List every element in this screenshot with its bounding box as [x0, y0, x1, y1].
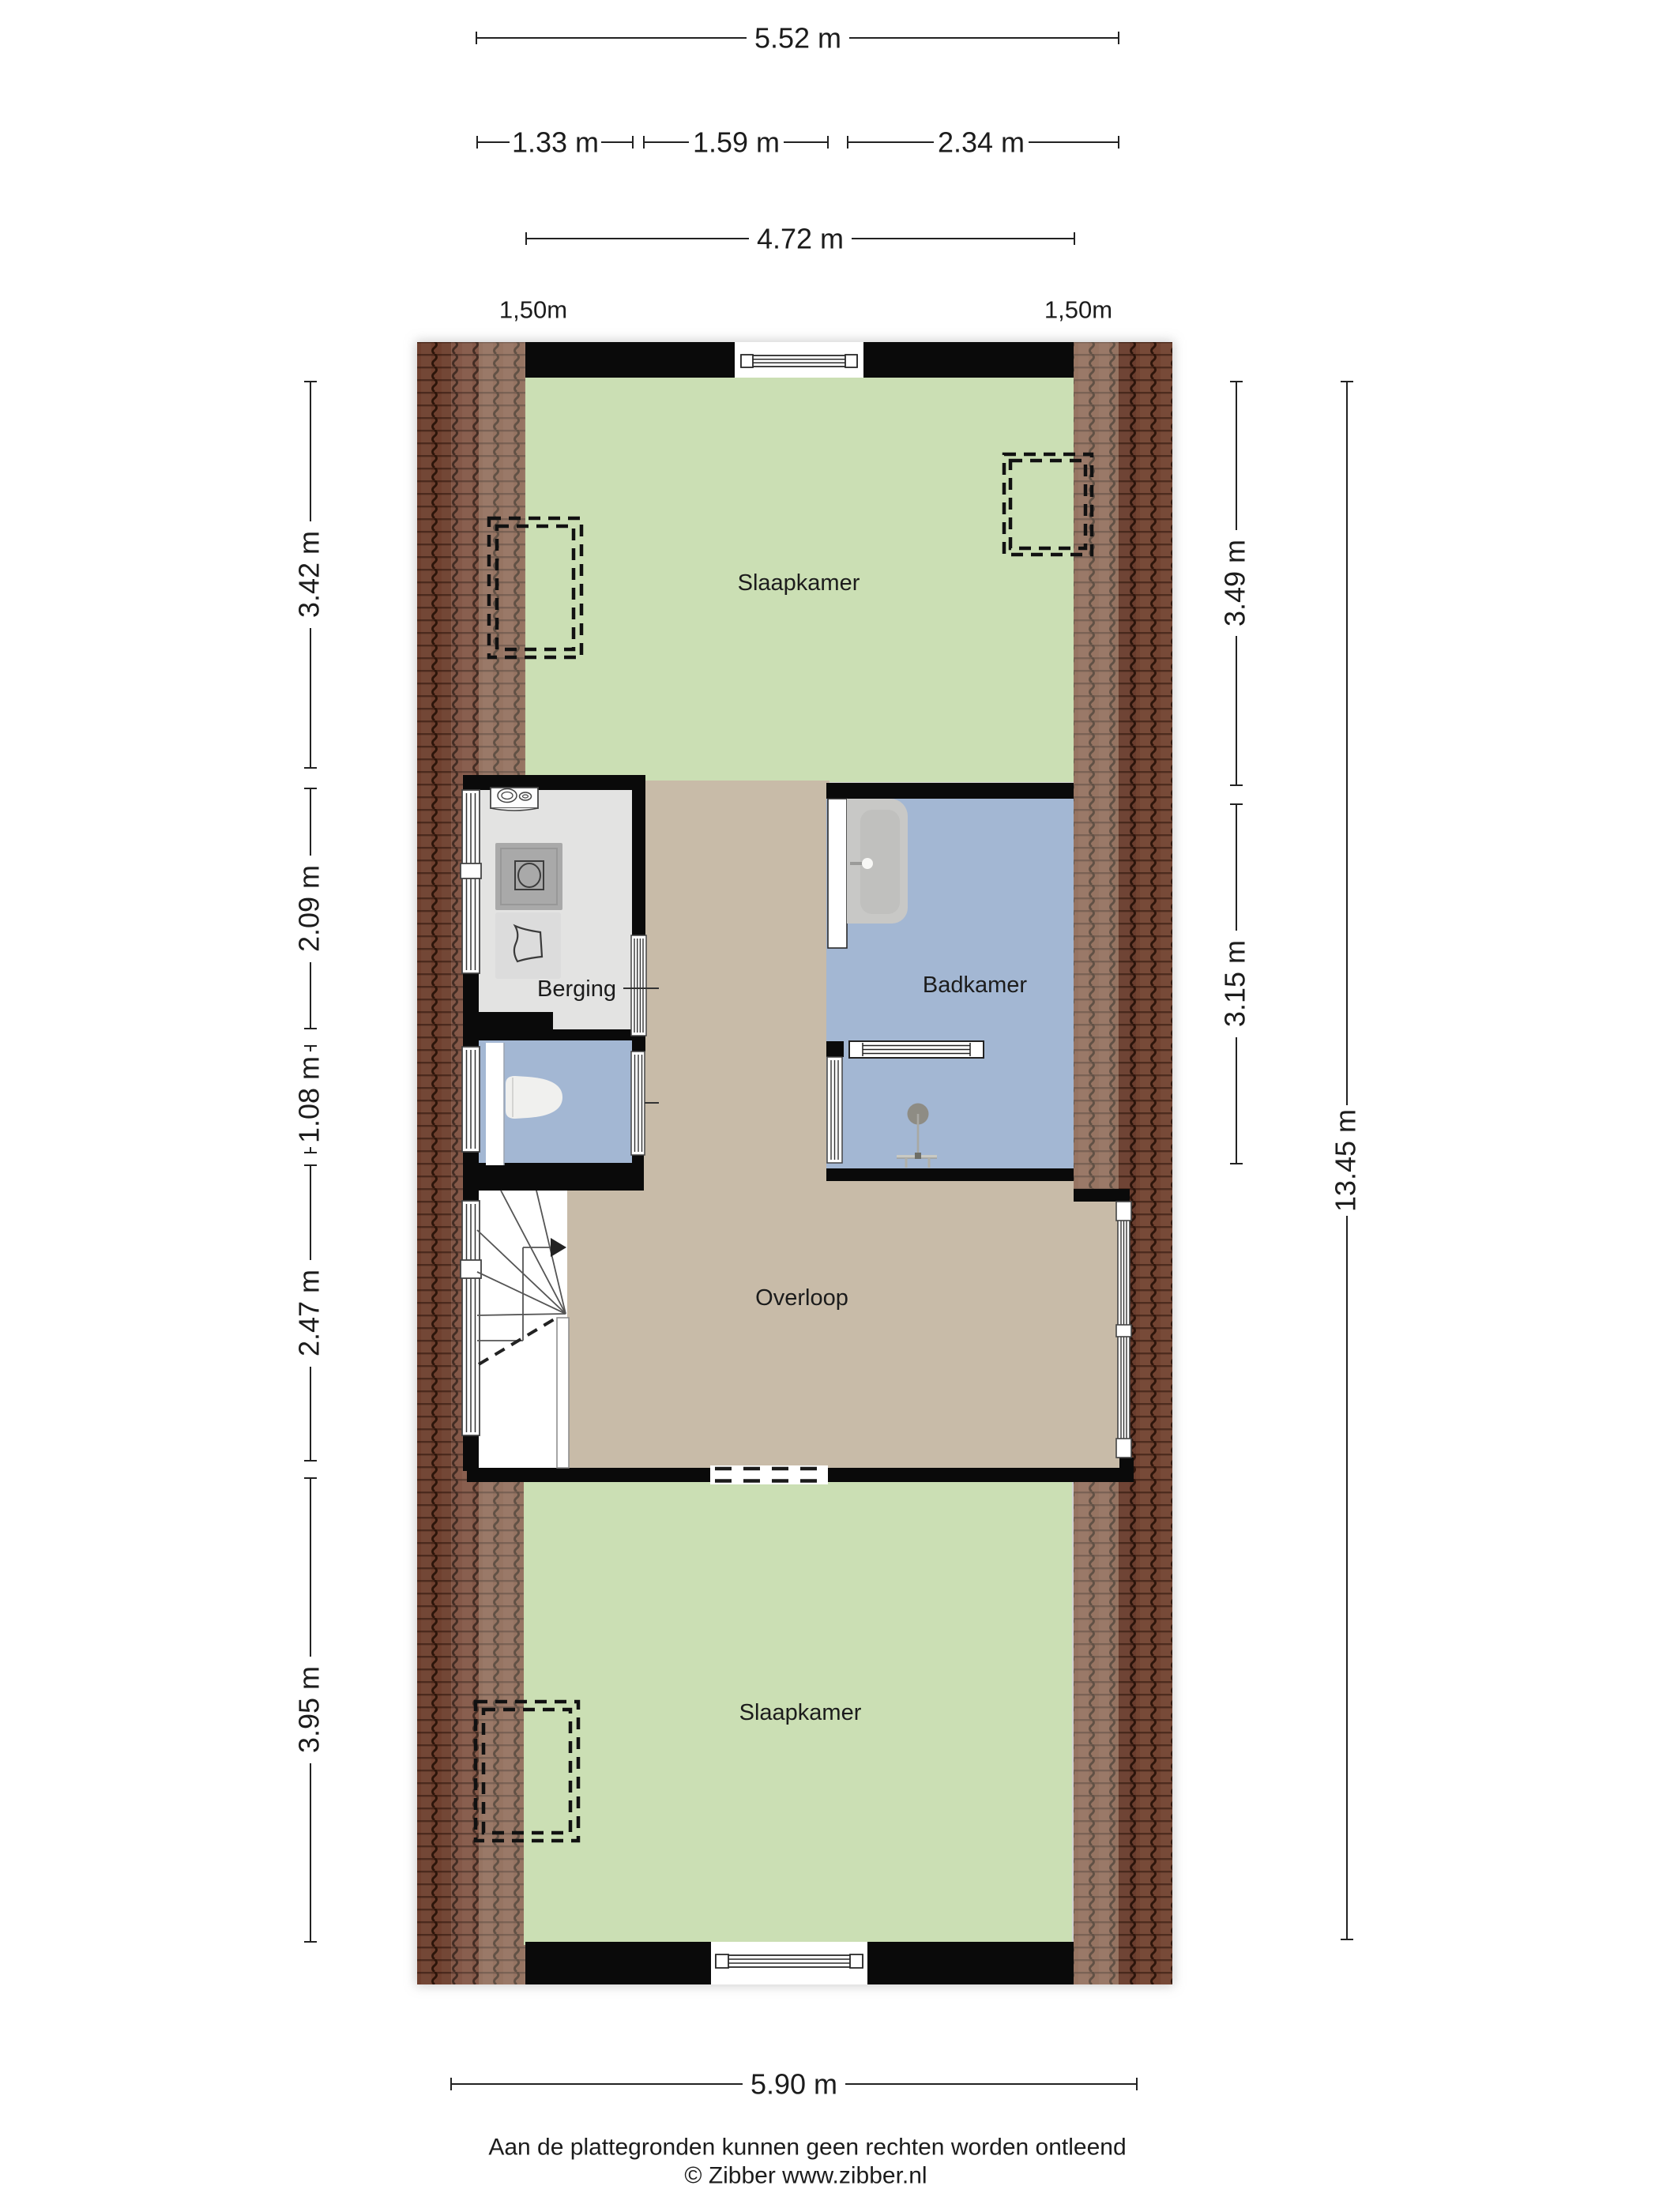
svg-text:5.90 m: 5.90 m: [750, 2068, 837, 2101]
svg-text:3.49 m: 3.49 m: [1219, 540, 1251, 626]
svg-text:Slaapkamer: Slaapkamer: [739, 1700, 862, 1725]
svg-text:1,50m: 1,50m: [1044, 296, 1112, 324]
svg-text:Slaapkamer: Slaapkamer: [738, 570, 860, 596]
svg-text:1.08 m: 1.08 m: [293, 1056, 325, 1143]
svg-text:2.09 m: 2.09 m: [293, 865, 325, 952]
svg-text:4.72 m: 4.72 m: [757, 223, 844, 255]
svg-text:1.33 m: 1.33 m: [512, 126, 599, 159]
svg-text:2.47 m: 2.47 m: [293, 1270, 325, 1356]
svg-text:1,50m: 1,50m: [499, 296, 567, 324]
svg-text:3.42 m: 3.42 m: [293, 531, 325, 618]
svg-text:3.15 m: 3.15 m: [1219, 940, 1251, 1027]
svg-text:5.52 m: 5.52 m: [754, 22, 841, 55]
svg-text:13.45 m: 13.45 m: [1330, 1109, 1362, 1212]
svg-text:Overloop: Overloop: [755, 1285, 848, 1311]
svg-text:Berging: Berging: [537, 976, 616, 1002]
svg-text:2.34 m: 2.34 m: [938, 126, 1025, 159]
svg-text:© Zibber www.zibber.nl: © Zibber www.zibber.nl: [684, 2163, 927, 2189]
svg-text:3.95 m: 3.95 m: [293, 1666, 325, 1753]
svg-text:Badkamer: Badkamer: [923, 972, 1028, 998]
svg-text:1.59 m: 1.59 m: [693, 126, 780, 159]
svg-text:Aan de plattegronden kunnen ge: Aan de plattegronden kunnen geen rechten…: [488, 2135, 1126, 2161]
